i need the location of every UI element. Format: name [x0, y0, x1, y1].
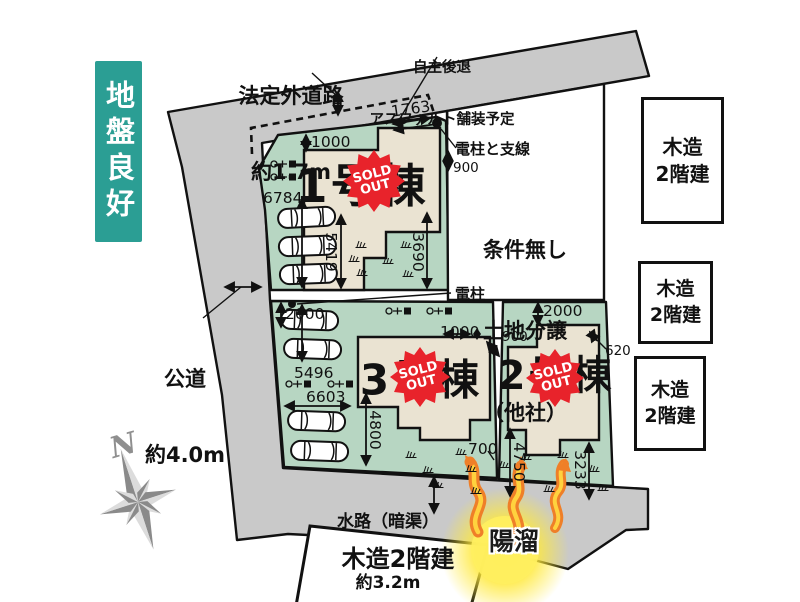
dim-3233: 3233 — [571, 450, 589, 489]
neighbor-box-2: 木造 2階建 — [638, 261, 713, 344]
dim-4800: 4800 — [366, 410, 384, 449]
dim-1000-lot1: 1000 — [311, 133, 350, 151]
pole-guy-label: 電柱と支線 — [455, 140, 530, 158]
neighbor-box-1: 木造 2階建 — [641, 97, 724, 224]
ground-quality-badge: 地盤良好 — [95, 61, 142, 242]
waterway-label: 水路（暗渠） 約3.2m — [337, 471, 439, 602]
dim-2000-lot2: 2000 — [543, 302, 582, 320]
sun-pocket-label: 陽溜 — [489, 527, 539, 557]
dim-2000-lot3: 2000 — [285, 305, 324, 323]
dim-900-lot1: 900 — [453, 160, 479, 176]
dim-5419: 5419 — [322, 232, 340, 271]
dim-1000-lot3: 1000 — [440, 323, 479, 341]
dim-620: 620 — [605, 343, 631, 359]
site-plan: 地盤良好 法定外道路 約1.7m 自主後退 アスファルト舗装予定 電柱と支線 条… — [0, 0, 800, 602]
neighbor-box-3: 木造 2階建 — [634, 356, 706, 451]
ground-quality-text: 地盤良好 — [98, 80, 140, 224]
dim-900-lot2: 900 — [502, 329, 528, 345]
public-road-label: 公道 約4.0m — [145, 317, 225, 519]
dim-5496: 5496 — [294, 364, 333, 382]
pole-label: 電柱 — [455, 285, 485, 303]
dim-3690: 3690 — [409, 232, 427, 271]
dim-6603: 6603 — [306, 388, 345, 406]
dim-6784: 6784 — [263, 189, 302, 207]
bottom-lot-label: 木造2階建 — [342, 545, 455, 574]
dim-700: 700 — [468, 440, 498, 458]
dim-4750: 4750 — [510, 442, 528, 481]
